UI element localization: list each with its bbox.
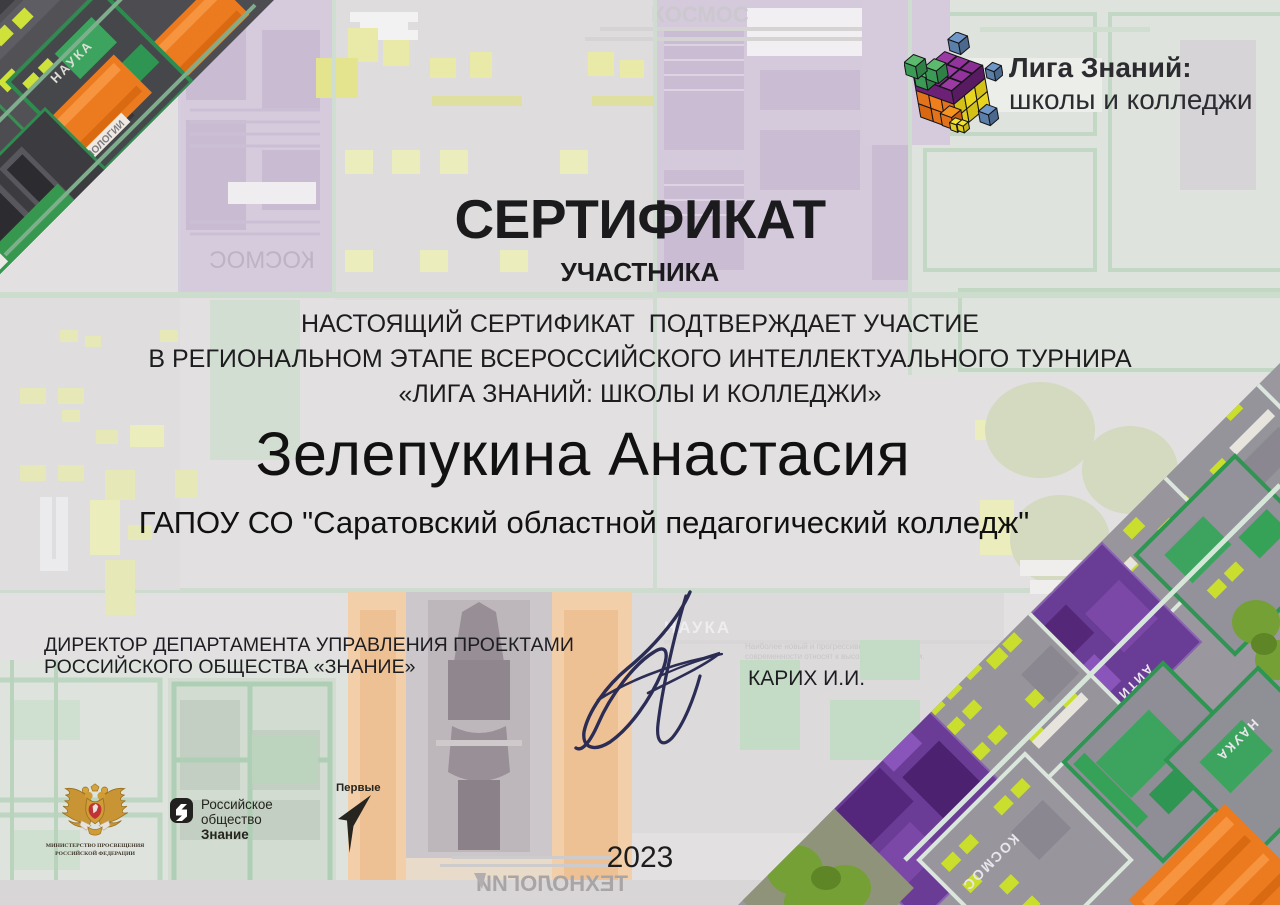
svg-text:Знание: Знание [201, 827, 249, 842]
svg-text:общество: общество [201, 812, 262, 827]
svg-text:Первые: Первые [336, 782, 381, 794]
svg-text:КОСМОС: КОСМОС [651, 2, 749, 27]
svg-text:Российское: Российское [201, 797, 273, 812]
